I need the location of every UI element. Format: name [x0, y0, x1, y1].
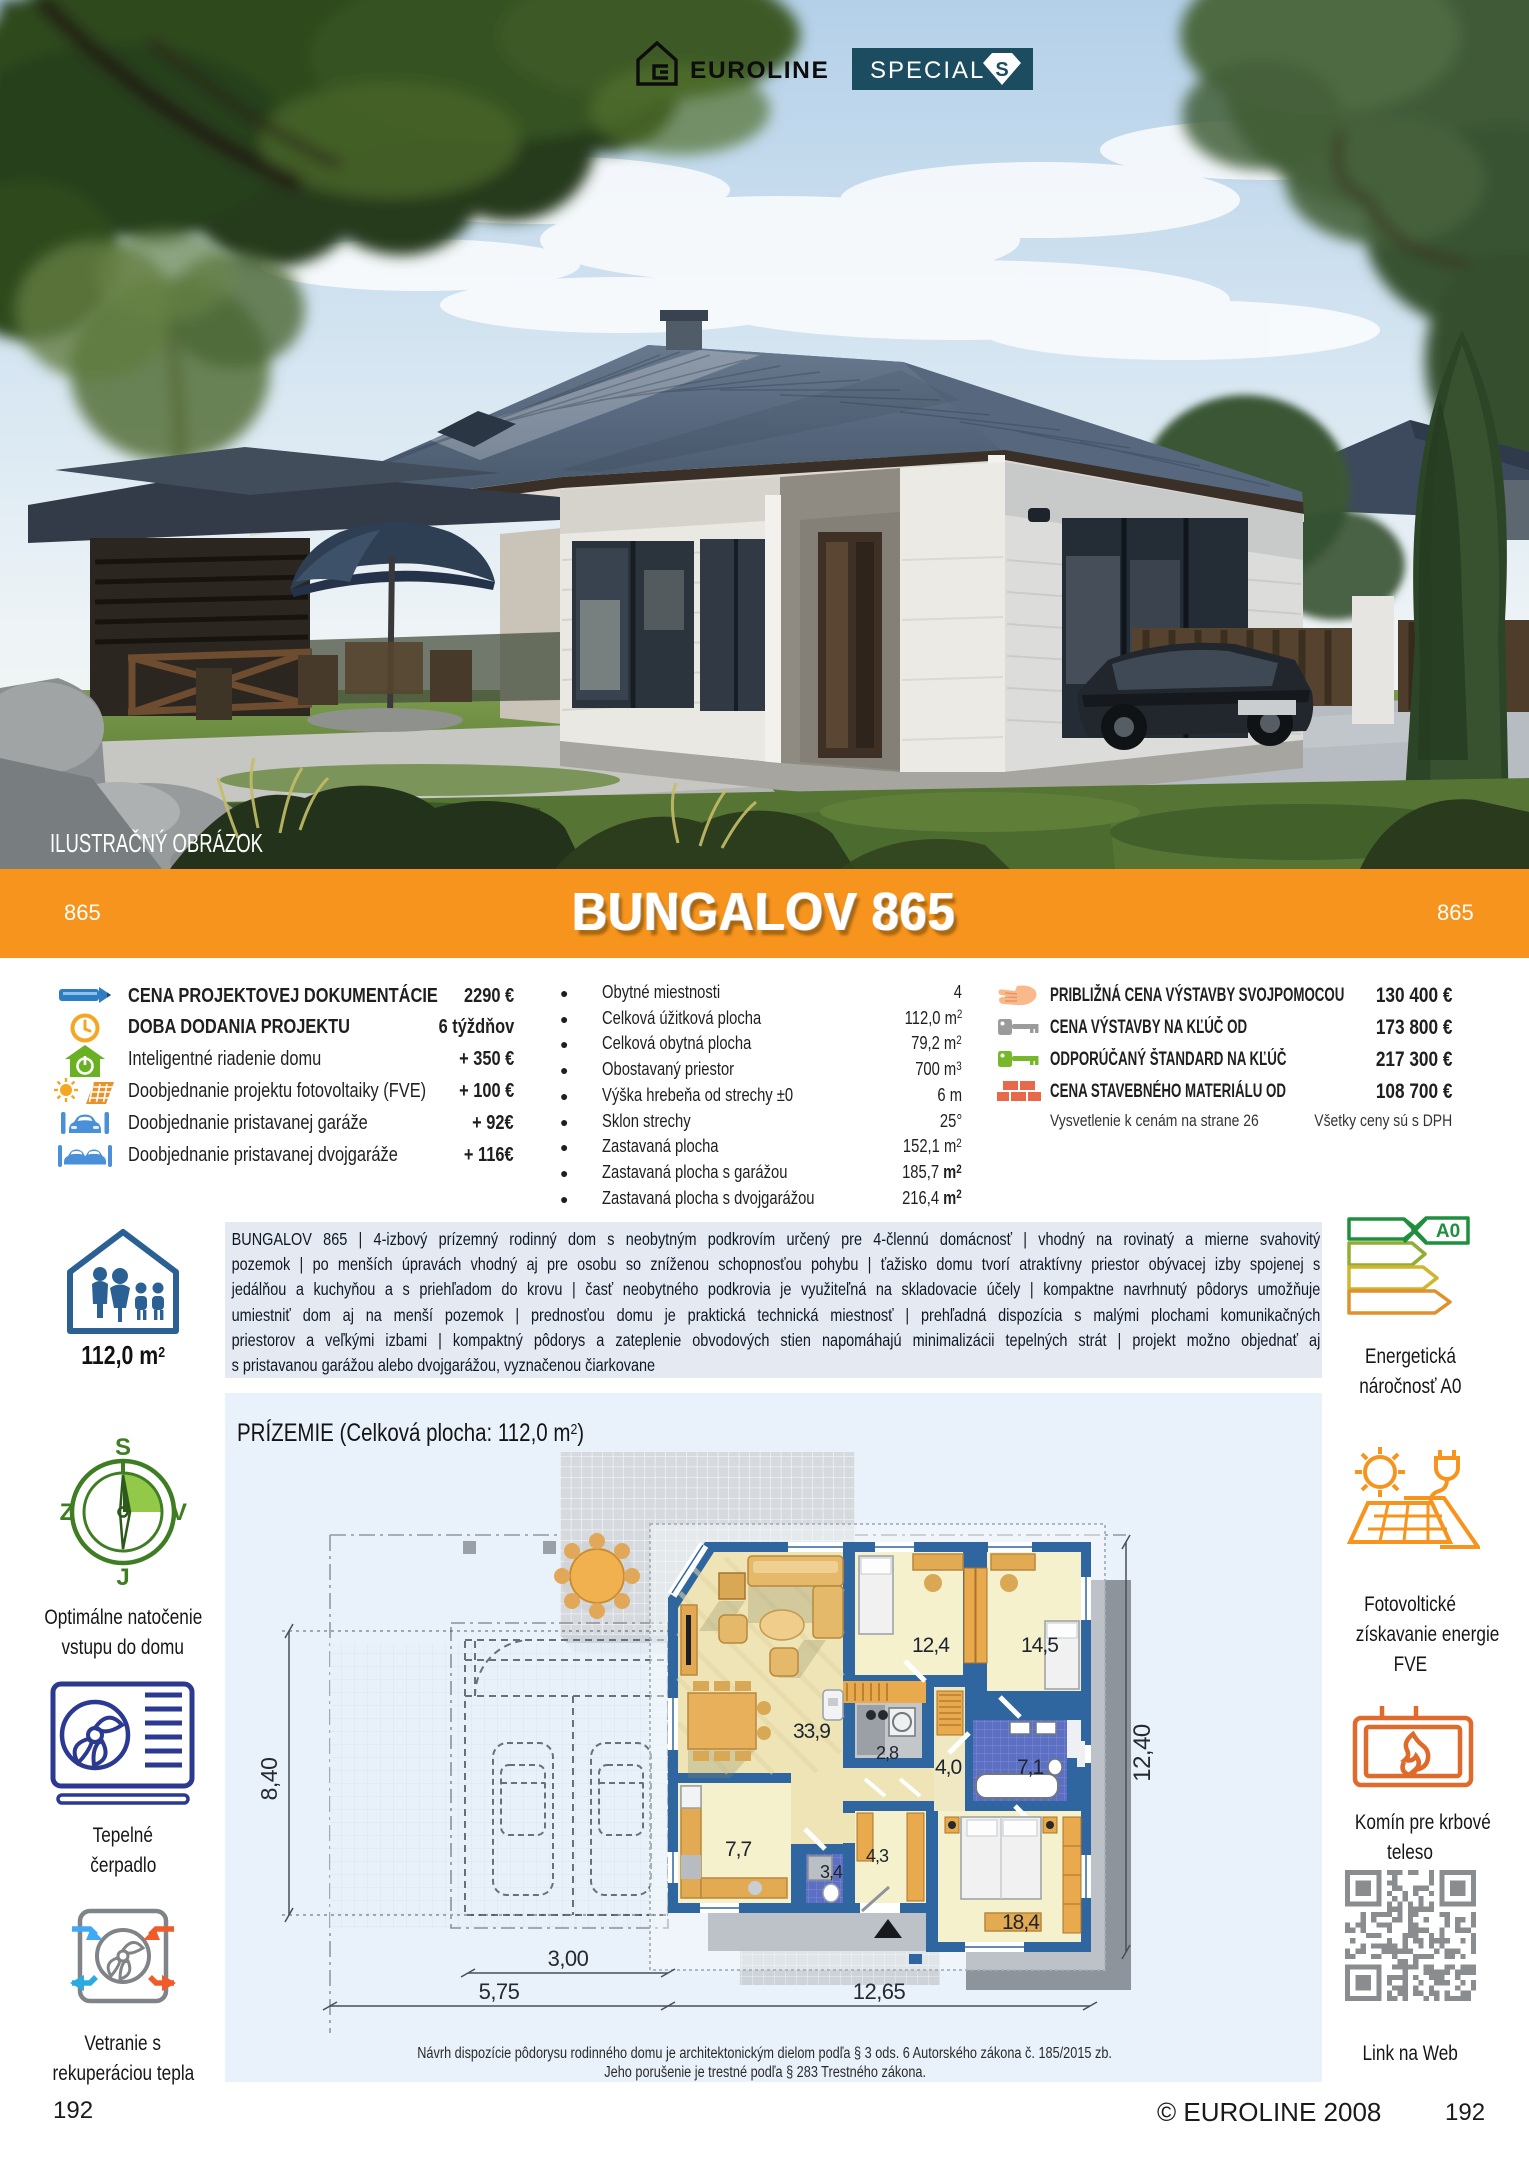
svg-text:3,4: 3,4	[820, 1862, 843, 1882]
svg-text:3,00: 3,00	[548, 1946, 589, 1971]
svg-text:EUROLINE: EUROLINE	[690, 57, 829, 84]
svg-text:A0: A0	[1436, 1221, 1460, 1242]
svg-text:J: J	[116, 1564, 129, 1589]
svg-text:7,7: 7,7	[725, 1838, 752, 1861]
svg-text:12,40: 12,40	[1129, 1724, 1156, 1782]
svg-text:7,1: 7,1	[1017, 1756, 1044, 1779]
svg-text:18,4: 18,4	[1002, 1911, 1040, 1934]
svg-text:ILUSTRAČNÝ OBRÁZOK: ILUSTRAČNÝ OBRÁZOK	[50, 828, 263, 858]
svg-text:4,0: 4,0	[935, 1756, 962, 1779]
svg-text:4,3: 4,3	[866, 1846, 889, 1866]
svg-text:12,4: 12,4	[912, 1634, 950, 1657]
svg-text:S: S	[115, 1434, 131, 1461]
svg-text:12,65: 12,65	[853, 1979, 906, 2004]
svg-text:2,8: 2,8	[876, 1743, 899, 1763]
svg-text:8,40: 8,40	[256, 1758, 282, 1801]
svg-text:14,5: 14,5	[1021, 1634, 1058, 1657]
svg-text:33,9: 33,9	[793, 1720, 830, 1743]
svg-text:5,75: 5,75	[479, 1979, 520, 2004]
svg-text:S: S	[995, 59, 1008, 81]
